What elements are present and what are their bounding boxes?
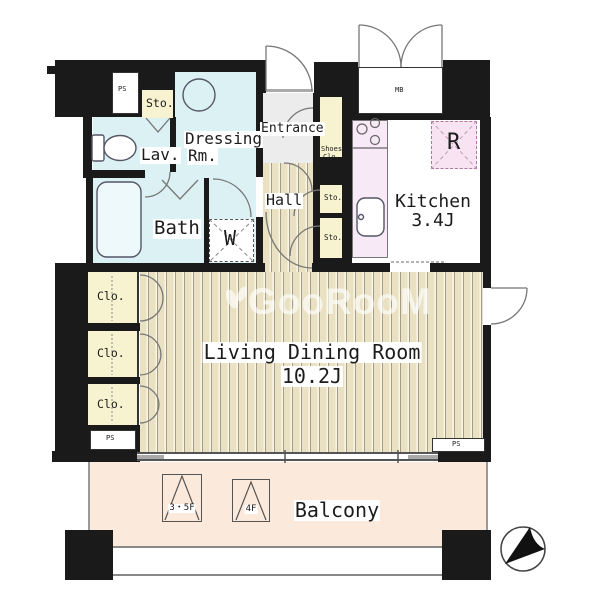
wall [88,323,140,331]
sliding-window-sash [408,455,438,459]
closet-2-label: Clo. [96,347,126,359]
balcony-left-rail [88,462,90,530]
sliding-window [137,452,438,461]
room-hall-floor [263,163,313,275]
wall [314,62,358,93]
ps-bottom-label: PS [451,441,461,448]
entry-threshold [266,89,313,92]
wall [352,263,390,272]
wall [256,217,263,263]
wall [320,213,342,218]
room-size-kitchen: 3.4J [410,212,455,231]
room-size-living: 10.2J [281,366,343,387]
wall [480,117,491,263]
wall [438,451,491,462]
refrigerator-mark: R [446,131,461,154]
wall [83,113,92,178]
wall [175,60,260,72]
wall [483,263,491,288]
room-label-entrance: Entrance [260,122,325,136]
room-label-bath: Bath [153,219,201,239]
balcony-floor [89,462,488,546]
wall [256,60,266,93]
room-label-balcony: Balcony [294,500,380,521]
storage-mid-label: Sto. [323,194,343,202]
room-lav-door-strip [145,170,209,178]
sliding-window-sash [137,455,164,459]
room-label-dressing-2: Rm. [187,148,218,165]
entry-door-arc [266,46,312,91]
balcony-right-rail [486,462,488,530]
balcony-pillar-left [65,530,113,580]
hatch-label-35f: 3・5F [168,504,195,513]
wall [430,263,491,272]
evacuation-hatch-1 [162,474,202,522]
closet-track [137,272,139,323]
wall [88,377,140,384]
room-label-lavatory: Lav. [140,147,181,164]
meter-box-label: MB [394,87,404,94]
room-label-living: Living Dining Room [203,342,422,363]
wall [47,66,56,74]
ps-left-label: PS [105,435,115,442]
wall [86,263,265,272]
floor-plan: GooRooM [0,0,600,600]
room-label-hall: Hall [265,193,303,209]
storage-lower-label: Sto. [323,234,343,242]
closet-track [137,331,139,377]
closet-1-label: Clo. [96,290,126,302]
storage-top-label: Sto. [145,97,175,109]
wall [320,93,342,97]
evacuation-hatch-2 [232,479,270,522]
closet-track [137,384,139,425]
closet-3-label: Clo. [96,398,126,410]
wall [86,170,145,178]
balcony-pillar-right [442,530,491,580]
balcony-outer-rim [113,546,442,576]
wall [312,263,352,272]
wall [313,93,320,263]
compass-icon [501,527,545,571]
wall [443,60,490,117]
room-dressing-upper [175,72,256,117]
wall [52,451,137,462]
wall [86,178,93,263]
watermark: GooRooM [248,281,432,323]
hatch-label-4f: 4F [245,505,258,514]
shoes-closet-label-2: Clo. [322,154,341,161]
wall [342,117,352,263]
wall [352,113,480,120]
washer-mark: W [223,228,237,249]
kitchen-counter [352,120,388,258]
wall [483,325,491,452]
ps-top-label: PS [117,86,127,93]
wall [55,263,88,462]
